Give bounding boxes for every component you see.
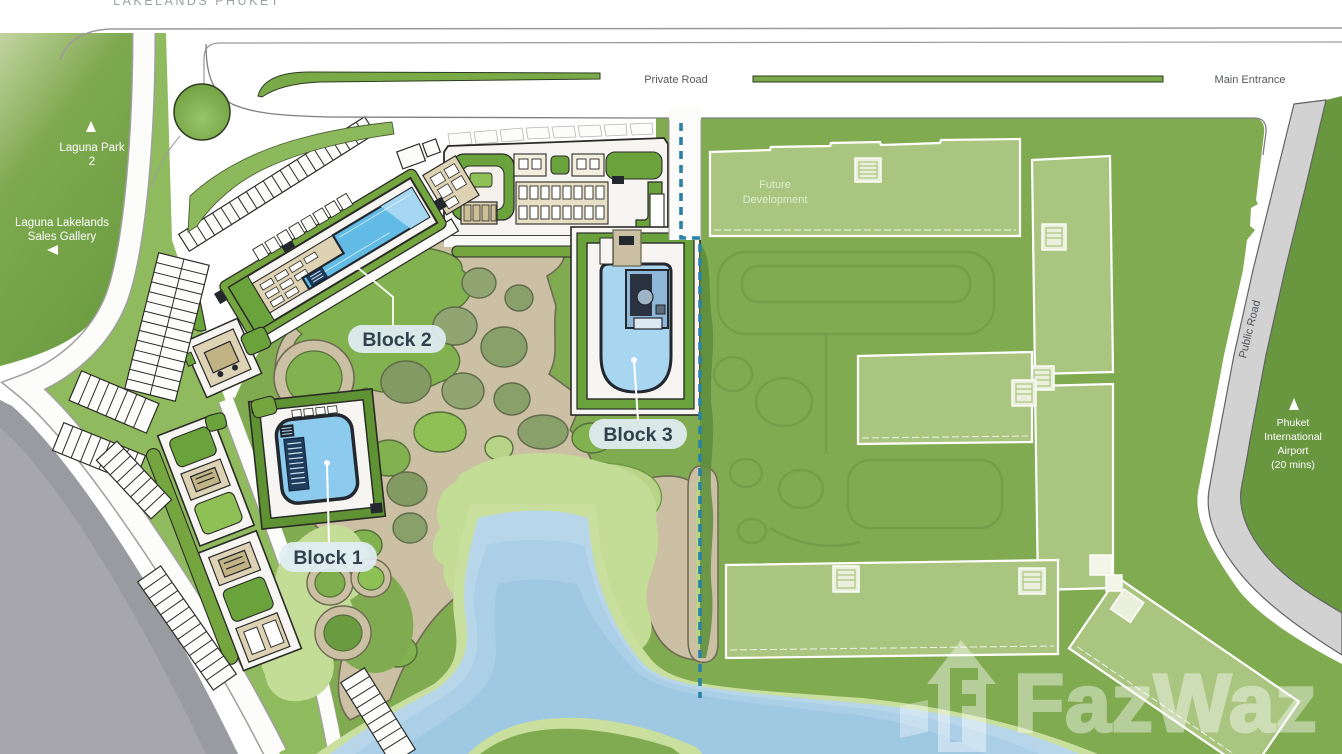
svg-text:2: 2: [89, 156, 95, 168]
svg-text:Airport: Airport: [1278, 445, 1309, 457]
svg-text:International: International: [1264, 431, 1322, 443]
svg-text:Laguna Lakelands: Laguna Lakelands: [15, 217, 109, 229]
svg-text:Block 2: Block 2: [362, 329, 432, 351]
svg-text:LAKELANDS PHUKET: LAKELANDS PHUKET: [113, 0, 281, 8]
svg-text:Main Entrance: Main Entrance: [1215, 74, 1286, 86]
svg-text:Block 3: Block 3: [603, 424, 673, 446]
svg-text:Laguna Park: Laguna Park: [59, 142, 124, 154]
svg-text:Future: Future: [759, 179, 791, 191]
svg-text:Sales Gallery: Sales Gallery: [28, 231, 97, 243]
svg-text:Development: Development: [743, 194, 808, 206]
svg-text:Block 1: Block 1: [293, 547, 363, 569]
svg-text:FazWaz: FazWaz: [1014, 658, 1318, 749]
svg-text:Phuket: Phuket: [1277, 417, 1310, 429]
svg-text:Private Road: Private Road: [644, 74, 708, 86]
svg-text:(20 mins): (20 mins): [1271, 459, 1315, 471]
